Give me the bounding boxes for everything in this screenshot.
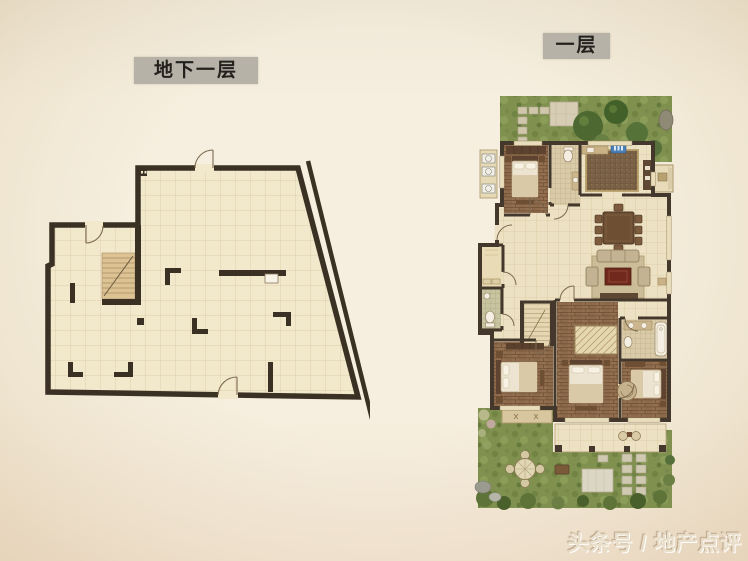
basement-floor — [48, 168, 358, 397]
terrace — [555, 424, 666, 452]
closet-floor — [575, 326, 617, 354]
stone-path — [582, 469, 613, 492]
first-floor-label: 一层 — [543, 33, 610, 59]
basement-stairs — [102, 253, 135, 299]
kitchen-counter — [643, 160, 652, 190]
armchair-right — [638, 267, 650, 286]
pergola-bench — [502, 410, 552, 423]
garden-rock — [659, 110, 673, 130]
sofa-main — [597, 250, 639, 262]
garden-south — [475, 408, 675, 510]
study-rug — [586, 150, 638, 191]
armchair-left — [586, 267, 598, 286]
wall-fixture — [265, 274, 278, 283]
first-floor-plan — [470, 88, 680, 516]
watermark-text: 头条号 / 地产点评 — [567, 527, 742, 557]
bed-headboard — [512, 156, 538, 161]
bed-bench — [516, 200, 534, 205]
side-table — [658, 278, 666, 285]
dining-table — [603, 212, 634, 244]
storage-room — [481, 246, 502, 287]
basement-plan — [40, 135, 370, 425]
porch — [653, 165, 673, 192]
bedroom-3 — [562, 360, 610, 411]
ac-units — [480, 150, 497, 198]
garden-bench — [555, 465, 569, 474]
toilet-2 — [624, 337, 632, 348]
basement-floor-label: 地下一层 — [134, 57, 258, 84]
wardrobe — [506, 146, 546, 154]
toilet — [564, 150, 573, 162]
study-cabinet — [582, 146, 608, 154]
